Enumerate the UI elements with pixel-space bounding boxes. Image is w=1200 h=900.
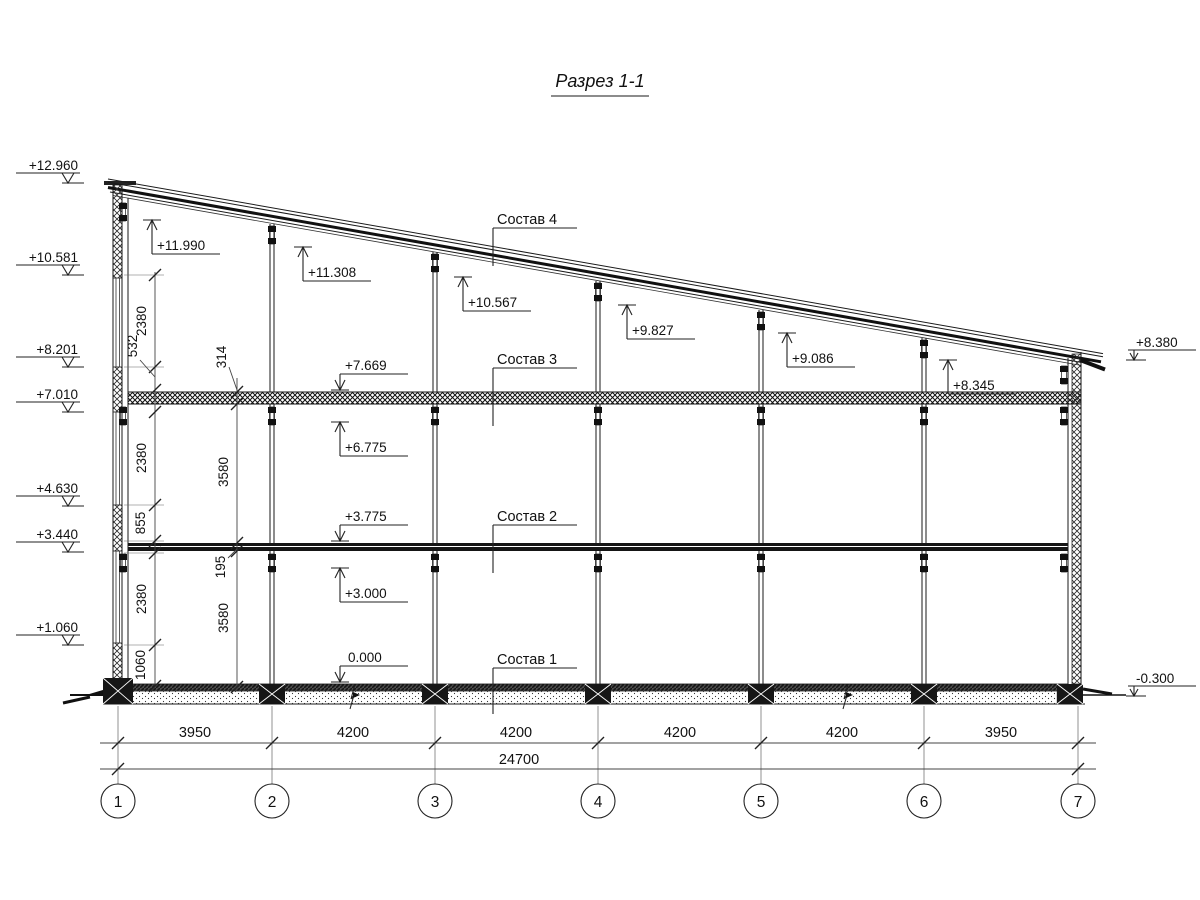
dim-label: 1060 bbox=[133, 650, 148, 680]
layer-callout: Состав 1 bbox=[493, 652, 577, 714]
elevation-value: +7.669 bbox=[345, 358, 387, 373]
joint bbox=[920, 340, 928, 358]
grid-bubbles: 1 2 3 4 5 6 7 bbox=[101, 784, 1095, 818]
layer-label: Состав 1 bbox=[497, 652, 557, 668]
grid-bubble-4: 4 bbox=[581, 784, 615, 818]
elevation-value: -0.300 bbox=[1136, 671, 1174, 686]
joint bbox=[268, 407, 276, 425]
section-drawing: Разрез 1-1 bbox=[0, 0, 1200, 900]
joint bbox=[119, 407, 127, 425]
grid-bubble-1: 1 bbox=[101, 784, 135, 818]
joint bbox=[594, 407, 602, 425]
elevation-mark: +11.990 bbox=[143, 220, 220, 254]
foundation-left-wall bbox=[103, 678, 133, 704]
elevation-mark: +1.060 bbox=[16, 620, 84, 645]
dim-label: 314 bbox=[214, 345, 229, 368]
elevation-mark: +8.201 bbox=[16, 342, 84, 367]
layer-label: Состав 3 bbox=[497, 352, 557, 368]
joint bbox=[1060, 366, 1068, 384]
elevation-value: +6.775 bbox=[345, 440, 387, 455]
joint bbox=[268, 226, 276, 244]
joint bbox=[757, 554, 765, 572]
dim-label: 3580 bbox=[216, 603, 231, 633]
elevation-value: +9.086 bbox=[792, 351, 834, 366]
dim-label: 4200 bbox=[500, 725, 532, 741]
column-axis-3 bbox=[433, 252, 437, 684]
joint bbox=[119, 203, 127, 221]
dim-label: 2380 bbox=[134, 306, 149, 336]
roof bbox=[104, 179, 1105, 370]
column-axis-2 bbox=[270, 224, 274, 684]
foundation-column bbox=[585, 684, 611, 704]
column-axis-4 bbox=[596, 281, 600, 684]
section-drawing-sheet: Разрез 1-1 bbox=[0, 0, 1200, 900]
elevation-mark: +8.380 bbox=[1126, 335, 1196, 360]
elevation-value: +3.440 bbox=[36, 527, 78, 542]
grid-bubble-2: 2 bbox=[255, 784, 289, 818]
elevation-mark: -0.300 bbox=[1126, 671, 1196, 696]
joint bbox=[920, 554, 928, 572]
drawing-title: Разрез 1-1 bbox=[551, 71, 649, 96]
wall-insulation-panel bbox=[113, 367, 122, 412]
elevation-mark: +8.345 bbox=[939, 360, 1016, 394]
elevation-mark: +12.960 bbox=[16, 158, 84, 183]
axis-number: 6 bbox=[920, 794, 929, 811]
joint bbox=[920, 407, 928, 425]
grid-bubble-7: 7 bbox=[1061, 784, 1095, 818]
ground-line-right bbox=[1081, 689, 1126, 695]
dim-label: 4200 bbox=[337, 725, 369, 741]
elevation-mark: +9.827 bbox=[618, 305, 695, 339]
axis-number: 5 bbox=[757, 794, 766, 811]
joint bbox=[594, 554, 602, 572]
column-axis-5 bbox=[759, 310, 763, 684]
floor-slab-3 bbox=[128, 392, 1081, 404]
axis-number: 4 bbox=[594, 794, 603, 811]
elevation-mark: +3.440 bbox=[16, 527, 84, 552]
elevation-mark: +7.669 bbox=[331, 358, 408, 390]
roof-deck bbox=[108, 188, 1101, 362]
foundation-column bbox=[911, 684, 937, 704]
dim-label: 532 bbox=[125, 335, 140, 358]
elevation-value: +10.581 bbox=[29, 250, 78, 265]
wall-insulation-panel bbox=[113, 505, 122, 551]
grid-bubble-6: 6 bbox=[907, 784, 941, 818]
layer-callout: Состав 2 bbox=[493, 509, 577, 573]
elevation-mark: +10.567 bbox=[454, 277, 531, 311]
dim-label: 3580 bbox=[216, 457, 231, 487]
elevation-value: +8.201 bbox=[36, 342, 78, 357]
axis-number: 2 bbox=[268, 794, 277, 811]
wall-insulation-panel bbox=[1072, 354, 1081, 684]
elevation-value: +3.000 bbox=[345, 586, 387, 601]
joint bbox=[268, 554, 276, 572]
axis-number: 7 bbox=[1074, 794, 1083, 811]
joint bbox=[431, 554, 439, 572]
elevation-mark: +4.630 bbox=[16, 481, 84, 506]
elevation-value: +1.060 bbox=[36, 620, 78, 635]
window-band-middle bbox=[113, 412, 122, 505]
elevation-value: +7.010 bbox=[36, 387, 78, 402]
elevation-mark: +9.086 bbox=[778, 333, 855, 367]
elevation-marks-left: +12.960 +10.581 +8.201 +7.010 +4.630 +3.… bbox=[16, 158, 84, 645]
elevation-mark: +3.775 bbox=[331, 509, 408, 541]
dim-leader bbox=[229, 367, 237, 390]
dim-label: 2380 bbox=[134, 443, 149, 473]
axis-number: 3 bbox=[431, 794, 440, 811]
vertical-dim-chain-inner: 2380 532 2380 855 2380 1060 bbox=[124, 269, 164, 692]
foundation-column bbox=[422, 684, 448, 704]
joint bbox=[757, 312, 765, 330]
elevation-mark: +11.308 bbox=[294, 247, 371, 281]
dim-label: 3950 bbox=[179, 725, 211, 741]
wall-insulation-panel bbox=[113, 185, 122, 278]
foundation-column bbox=[259, 684, 285, 704]
joint bbox=[119, 554, 127, 572]
joint bbox=[431, 254, 439, 272]
grid-extension-lines bbox=[118, 706, 1078, 784]
dim-label: 2380 bbox=[134, 584, 149, 614]
elevation-value: +10.567 bbox=[468, 295, 517, 310]
elevation-mark: +6.775 bbox=[331, 422, 408, 456]
dim-label: 855 bbox=[133, 512, 148, 535]
layer-label: Состав 2 bbox=[497, 509, 557, 525]
elevation-value: +12.960 bbox=[29, 158, 78, 173]
elevation-mark: +10.581 bbox=[16, 250, 84, 275]
elevation-value: +8.380 bbox=[1136, 335, 1178, 350]
layer-label: Состав 4 bbox=[497, 212, 557, 228]
elevation-mark: +3.000 bbox=[331, 568, 408, 602]
elevation-value: +11.990 bbox=[157, 238, 205, 253]
elevation-value: +11.308 bbox=[308, 265, 356, 280]
elevation-value: +4.630 bbox=[36, 481, 78, 496]
foundation-right-wall bbox=[1057, 684, 1083, 704]
layer-callouts: Состав 4 Состав 3 Состав 2 Состав 1 bbox=[493, 212, 577, 714]
title-text: Разрез 1-1 bbox=[555, 71, 644, 91]
foundation-column bbox=[748, 684, 774, 704]
left-wall bbox=[113, 185, 128, 684]
dim-label-total: 24700 bbox=[499, 752, 539, 768]
dim-label: 195 bbox=[213, 556, 228, 579]
axis-number: 1 bbox=[114, 794, 123, 811]
elevation-value: 0.000 bbox=[348, 650, 382, 665]
floor-slab-2 bbox=[128, 543, 1068, 551]
grid-bubble-5: 5 bbox=[744, 784, 778, 818]
joint bbox=[1060, 554, 1068, 572]
elevation-value: +9.827 bbox=[632, 323, 674, 338]
dim-label: 4200 bbox=[664, 725, 696, 741]
joint bbox=[431, 407, 439, 425]
dim-label: 3950 bbox=[985, 725, 1017, 741]
joint bbox=[1060, 407, 1068, 425]
elevation-marks-mid: +7.669 +6.775 +3.775 +3.000 0.000 bbox=[331, 358, 408, 682]
elevation-marks-right: +8.380 -0.300 bbox=[1126, 335, 1196, 696]
elevation-value: +3.775 bbox=[345, 509, 387, 524]
wall-insulation-panel bbox=[113, 643, 122, 684]
layer-callout: Состав 3 bbox=[493, 352, 577, 426]
joint bbox=[757, 407, 765, 425]
elevation-mark: 0.000 bbox=[331, 650, 408, 682]
dim-label: 4200 bbox=[826, 725, 858, 741]
joint bbox=[594, 283, 602, 301]
window-band-upper bbox=[113, 278, 122, 367]
elevation-mark: +7.010 bbox=[16, 387, 84, 412]
column-axis-6 bbox=[922, 338, 926, 684]
elevation-value: +8.345 bbox=[953, 378, 995, 393]
grid-bubble-3: 3 bbox=[418, 784, 452, 818]
